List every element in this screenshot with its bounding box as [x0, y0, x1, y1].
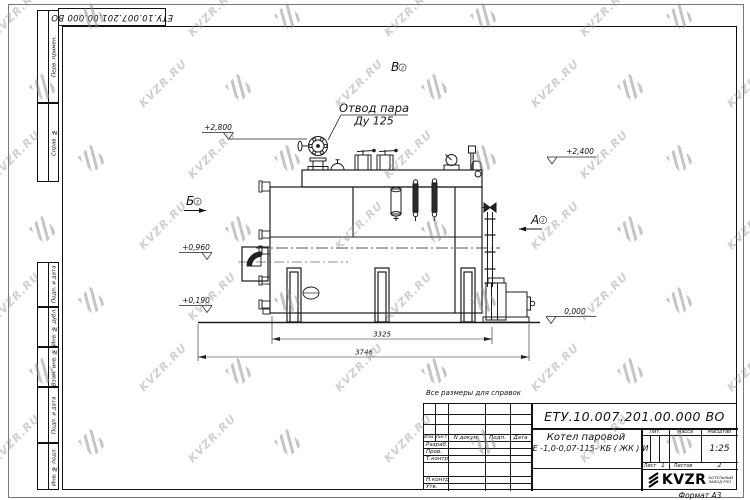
elevation-ground: 0,000	[564, 307, 586, 316]
view-v-sheet-ref: 2	[401, 66, 404, 72]
dim-boiler-length: 3325	[373, 331, 391, 339]
reference-note: Все размеры для справок	[426, 389, 521, 397]
engineering-drawing-sheet: { "watermark": { "text": "KVZR.RU" }, "d…	[0, 0, 750, 500]
title-block: Изм. Лист N докум. Подп. Дата Разраб. Пр…	[423, 403, 737, 490]
tb-line	[650, 435, 651, 462]
tb-line	[659, 435, 660, 462]
steam-outlet-callout: Отвод пара Ду 125	[328, 101, 409, 140]
elevation-mid: +0,960	[182, 243, 210, 252]
tb-line	[531, 468, 641, 469]
logo-subtext: КОТЕЛЬНЫЙ ЗАВОД РЭП	[708, 476, 733, 485]
lit-header: Лит.	[641, 428, 669, 435]
mass-header: Масса	[669, 428, 701, 435]
col-izm: Изм.	[424, 434, 435, 441]
view-label-b: Б	[186, 194, 194, 208]
tb-line	[424, 414, 531, 415]
dim-overall-length: 3746	[355, 349, 373, 357]
role-tcontrol: Т.контр.	[424, 455, 448, 462]
steam-outlet-line1: Отвод пара	[339, 101, 409, 115]
view-a-sheet-ref: 2	[542, 218, 545, 224]
view-label-v: В	[391, 60, 399, 74]
logo-sub-line2: ЗАВОД РЭП	[708, 479, 731, 484]
col-list: Лист	[435, 434, 448, 441]
role-checked: Пров.	[424, 448, 448, 455]
company-logo-cell: KVZR КОТЕЛЬНЫЙ ЗАВОД РЭП	[642, 469, 738, 491]
col-doc: N докум.	[448, 434, 485, 441]
instruments	[444, 146, 481, 177]
elevation-boiler-top: +2,400	[566, 147, 594, 156]
boiler-body	[198, 170, 540, 323]
tb-line	[424, 424, 531, 425]
water-level-gauges	[391, 179, 437, 221]
view-label-a: А	[530, 213, 539, 227]
safety-valves	[355, 149, 397, 170]
steam-outlet-valve	[298, 137, 328, 171]
title-doc-number: ЕТУ.10.007.201.00.000 ВО	[531, 404, 738, 428]
scale-header: Масштаб	[701, 428, 738, 435]
scale-value: 1:25	[701, 435, 738, 462]
downcomer-pipe	[482, 203, 496, 287]
role-developed: Разраб.	[424, 441, 448, 448]
dome-fitting	[331, 160, 344, 170]
tb-line	[424, 462, 531, 463]
lit-value: И	[641, 435, 650, 462]
sheets-label: Листов	[670, 462, 696, 469]
col-data: Дата	[510, 434, 531, 441]
format-label: Формат А3	[650, 491, 750, 500]
col-podp: Подп.	[485, 434, 510, 441]
elevation-low: +0,190	[182, 296, 210, 305]
coil-logo-icon	[647, 472, 660, 488]
role-approved: Утв.	[424, 483, 448, 491]
sheet-label: Лист	[642, 462, 658, 469]
logo-text: KVZR	[662, 472, 707, 488]
fan-assembly	[483, 278, 535, 322]
view-b-sheet-ref: 2	[196, 200, 199, 206]
product-name-line1: Котел паровой	[531, 430, 641, 444]
burner-unit	[242, 247, 268, 281]
sheet-value: 1	[657, 462, 669, 469]
steam-outlet-line2: Ду 125	[353, 115, 394, 128]
role-ncontrol: Н.контр.	[424, 476, 448, 483]
product-name-line2: Е -1,0-0,07-115- КБ ( ЖК )	[531, 443, 641, 454]
elevation-valve-top: +2,800	[204, 123, 232, 132]
sheets-value: 2	[701, 462, 738, 469]
